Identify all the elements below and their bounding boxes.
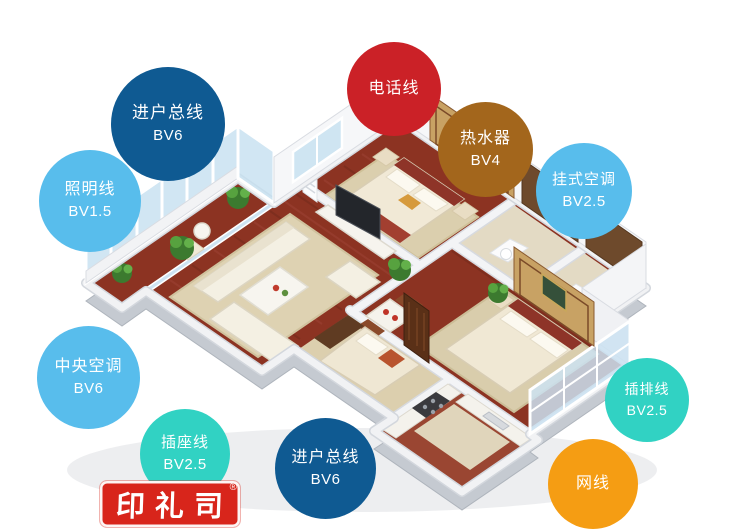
badge-label: 进户总线 bbox=[291, 449, 359, 467]
badge-power-strip-wire: 插排线 BV2.5 bbox=[605, 358, 689, 442]
poster: 进户总线 BV6 照明线 BV1.5 电话线 热水器 BV4 挂式空调 BV2.… bbox=[0, 0, 737, 530]
badge-spec: BV1.5 bbox=[68, 204, 111, 221]
badge-water-heater: 热水器 BV4 bbox=[438, 102, 533, 197]
badge-label: 中央空调 bbox=[54, 358, 122, 376]
badge-spec: BV2.5 bbox=[163, 457, 206, 474]
badge-label: 插座线 bbox=[161, 435, 209, 452]
balcony-table bbox=[194, 223, 210, 239]
badge-spec: BV6 bbox=[311, 472, 341, 489]
badge-telephone-wire: 电话线 bbox=[347, 42, 441, 136]
badge-central-ac: 中央空调 BV6 bbox=[37, 326, 140, 429]
badge-entry-main-bottom: 进户总线 BV6 bbox=[275, 418, 376, 519]
badge-spec: BV6 bbox=[74, 381, 104, 398]
badge-label: 挂式空调 bbox=[552, 172, 616, 189]
badge-spec: BV2.5 bbox=[627, 403, 668, 418]
badge-spec: BV2.5 bbox=[562, 194, 605, 211]
badge-network-cable: 网线 bbox=[548, 439, 638, 529]
seal-text: 印礼司 bbox=[106, 483, 234, 525]
badge-wall-mounted-ac: 挂式空调 BV2.5 bbox=[536, 143, 632, 239]
badge-lighting-wire: 照明线 BV1.5 bbox=[39, 150, 141, 252]
badge-spec: BV6 bbox=[153, 128, 183, 145]
plant bbox=[170, 236, 194, 260]
badge-entry-main-top: 进户总线 BV6 bbox=[111, 67, 225, 181]
badge-label: 电话线 bbox=[368, 80, 419, 98]
badge-spec: BV4 bbox=[471, 153, 501, 170]
badge-label: 热水器 bbox=[460, 130, 511, 148]
badge-label: 插排线 bbox=[625, 382, 670, 397]
badge-label: 照明线 bbox=[64, 181, 115, 199]
badge-label: 进户总线 bbox=[132, 104, 204, 123]
badge-label: 网线 bbox=[576, 475, 610, 493]
brand-seal: 印礼司 ® bbox=[100, 481, 240, 527]
registered-mark: ® bbox=[230, 482, 237, 493]
